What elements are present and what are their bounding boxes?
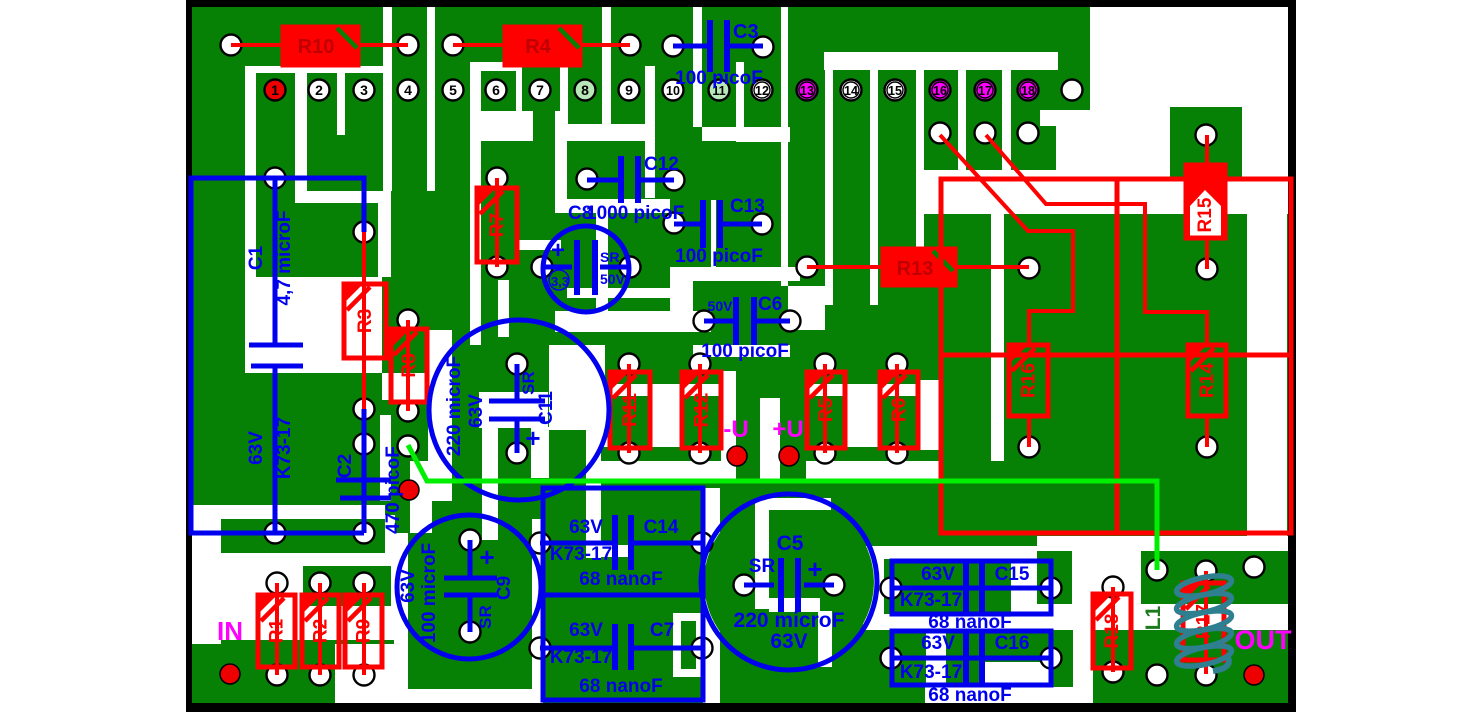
svg-text:13: 13 xyxy=(800,84,814,98)
svg-text:R13: R13 xyxy=(897,258,934,280)
svg-text:OUT: OUT xyxy=(1235,625,1293,655)
svg-text:4,7 microF: 4,7 microF xyxy=(274,210,295,305)
svg-text:14: 14 xyxy=(844,84,858,98)
svg-text:63V: 63V xyxy=(246,431,267,465)
svg-text:C7: C7 xyxy=(650,620,674,641)
svg-text:R5: R5 xyxy=(816,397,837,422)
svg-text:R4: R4 xyxy=(525,36,551,58)
svg-text:2: 2 xyxy=(315,82,323,98)
svg-text:K73-17: K73-17 xyxy=(550,544,612,565)
svg-text:-U: -U xyxy=(723,416,748,443)
svg-text:63V: 63V xyxy=(466,394,487,428)
svg-text:+: + xyxy=(479,542,494,572)
svg-text:5: 5 xyxy=(449,82,457,98)
svg-text:C2: C2 xyxy=(335,454,356,478)
svg-text:15: 15 xyxy=(888,84,902,98)
svg-text:220 microF: 220 microF xyxy=(444,356,465,456)
svg-text:K73-17: K73-17 xyxy=(550,647,612,668)
svg-text:63V: 63V xyxy=(398,569,419,603)
svg-text:+: + xyxy=(551,237,565,264)
svg-text:C1: C1 xyxy=(246,245,267,270)
svg-text:C12: C12 xyxy=(644,154,679,175)
svg-text:R12: R12 xyxy=(692,393,713,428)
svg-text:C14: C14 xyxy=(644,517,679,538)
svg-text:100 picoF: 100 picoF xyxy=(701,341,789,362)
svg-text:16: 16 xyxy=(933,84,947,98)
svg-text:R3: R3 xyxy=(355,309,376,333)
svg-text:K73-17: K73-17 xyxy=(900,590,962,611)
svg-text:R6: R6 xyxy=(889,398,910,422)
svg-text:SR: SR xyxy=(600,249,619,265)
svg-text:1000 picoF: 1000 picoF xyxy=(586,203,684,224)
svg-text:8: 8 xyxy=(581,82,589,98)
svg-text:R15: R15 xyxy=(1195,197,1216,232)
svg-text:R11: R11 xyxy=(620,393,641,427)
svg-text:K73-17: K73-17 xyxy=(274,417,295,479)
svg-text:50V: 50V xyxy=(708,298,734,314)
svg-text:63V: 63V xyxy=(569,620,603,641)
svg-text:C16: C16 xyxy=(995,633,1030,654)
svg-text:+U: +U xyxy=(772,416,803,443)
svg-text:9: 9 xyxy=(625,82,633,98)
svg-text:220 microF: 220 microF xyxy=(734,609,845,632)
svg-text:IN: IN xyxy=(217,616,243,646)
svg-text:C3: C3 xyxy=(733,21,759,43)
svg-text:4: 4 xyxy=(404,82,412,98)
svg-text:100 picoF: 100 picoF xyxy=(675,246,763,267)
svg-text:50V: 50V xyxy=(600,271,626,287)
svg-text:+: + xyxy=(525,423,540,453)
svg-text:C15: C15 xyxy=(995,564,1030,585)
svg-text:C11: C11 xyxy=(536,391,557,425)
svg-text:R16: R16 xyxy=(1019,363,1040,398)
svg-text:7: 7 xyxy=(536,82,544,98)
svg-text:R9: R9 xyxy=(354,619,375,643)
svg-text:63V: 63V xyxy=(921,564,955,585)
svg-text:SR: SR xyxy=(749,556,776,577)
svg-text:17: 17 xyxy=(978,84,992,98)
svg-text:C9: C9 xyxy=(494,576,515,600)
svg-text:R8: R8 xyxy=(399,353,420,377)
svg-text:K73-17: K73-17 xyxy=(900,662,962,683)
svg-text:3: 3 xyxy=(360,82,368,98)
svg-text:68 nanoF: 68 nanoF xyxy=(579,676,662,697)
svg-text:+: + xyxy=(807,554,822,584)
svg-text:470 picoF: 470 picoF xyxy=(383,446,404,534)
svg-text:R14: R14 xyxy=(1197,363,1218,398)
svg-text:R7: R7 xyxy=(487,213,508,237)
svg-text:R2: R2 xyxy=(311,619,332,643)
svg-text:SR: SR xyxy=(476,605,495,629)
svg-text:68 nanoF: 68 nanoF xyxy=(579,569,662,590)
svg-text:6: 6 xyxy=(492,82,500,98)
svg-text:68 nanoF: 68 nanoF xyxy=(928,685,1011,706)
svg-text:L1: L1 xyxy=(1142,605,1165,630)
svg-text:R18: R18 xyxy=(1102,614,1123,649)
svg-text:63V: 63V xyxy=(770,630,807,653)
svg-text:18: 18 xyxy=(1021,84,1035,98)
svg-text:100 picoF: 100 picoF xyxy=(675,68,763,89)
svg-text:R1: R1 xyxy=(267,618,288,643)
svg-text:C6: C6 xyxy=(758,294,782,315)
svg-text:63V: 63V xyxy=(921,633,955,654)
svg-text:100 microF: 100 microF xyxy=(419,543,440,643)
svg-text:C5: C5 xyxy=(777,532,804,555)
svg-text:C13: C13 xyxy=(730,196,765,217)
svg-text:1: 1 xyxy=(271,82,279,98)
svg-text:63V: 63V xyxy=(569,517,603,538)
svg-text:R10: R10 xyxy=(298,36,335,58)
